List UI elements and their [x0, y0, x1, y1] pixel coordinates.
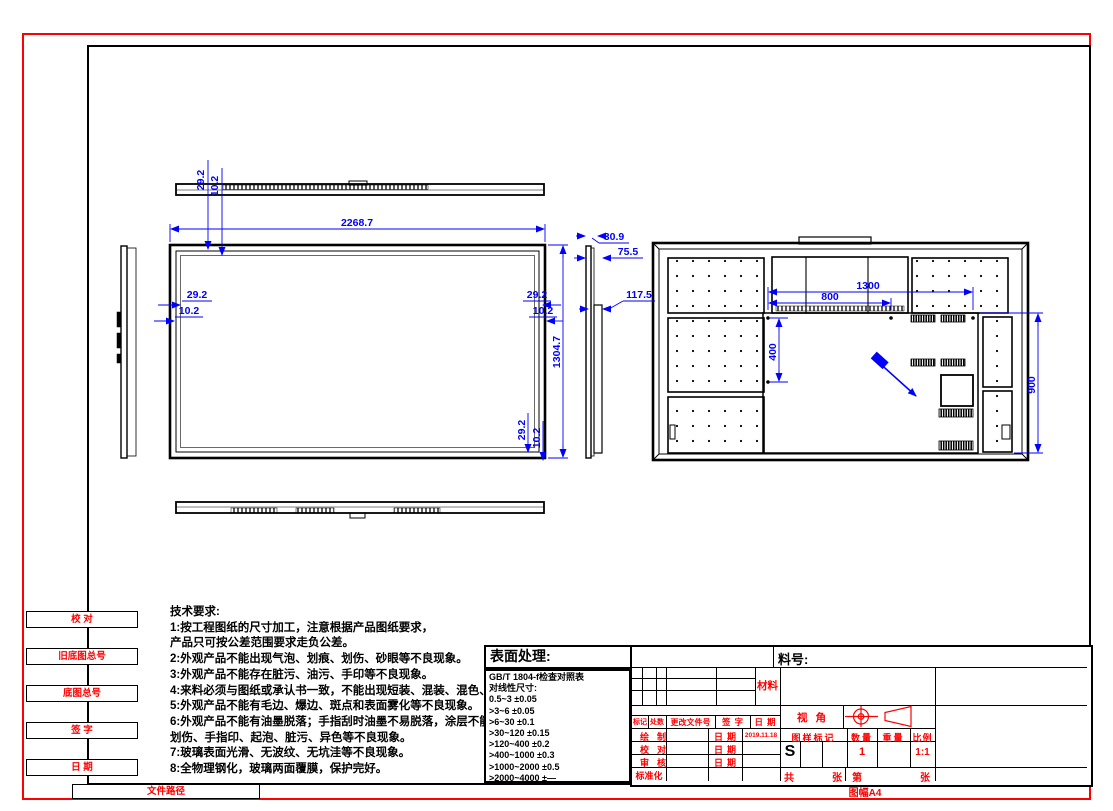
- margin-box-check: 校 对: [26, 611, 138, 628]
- tb-line: [632, 728, 935, 729]
- tb-line: [632, 690, 755, 691]
- margin-box-old-base-no: 旧底图总号: [26, 648, 138, 665]
- tb-line: [642, 667, 643, 705]
- tolerance-line: >400~1000 ±0.3: [489, 750, 629, 761]
- tolerance-line: 0.5~3 ±0.05: [489, 694, 629, 705]
- rev-col-count: 处数: [648, 717, 666, 727]
- bottom-edge-view: [176, 502, 544, 518]
- dim-rear-400-text: 400: [767, 343, 779, 361]
- qty-value: 1: [847, 746, 877, 758]
- rev-col-sign: 签字: [715, 716, 750, 728]
- margin-box-file-path: 文件路径: [72, 784, 260, 799]
- sheets-unit2-label: 张: [920, 769, 930, 784]
- tolerance-line: GB/T 1804-f检查对照表: [489, 672, 629, 683]
- dim-text: 29.2: [195, 170, 207, 191]
- dim-rear-1300-text: 1300: [856, 280, 880, 292]
- dim-bezel-left: 29.2 10.2: [154, 289, 212, 321]
- sign-row-audit-date-label: 日期: [708, 756, 742, 769]
- mark-col-scale: 比例: [910, 731, 935, 744]
- margin-label: 日 期: [71, 762, 93, 773]
- dim-side-a-text: 30.9: [604, 231, 625, 243]
- tb-line: [666, 667, 667, 705]
- material-label: 材料: [755, 678, 780, 693]
- tolerance-line: >2000~4000 ±—: [489, 773, 629, 784]
- margin-label: 文件路径: [147, 786, 185, 797]
- tb-line: [716, 667, 717, 705]
- cad-views: 2268.7 1304.7 29.2 10.2 29.2 10.2 29.2 1…: [0, 0, 1113, 600]
- rev-col-docno: 更改文件号: [666, 717, 715, 728]
- side-view-left: [117, 246, 136, 458]
- front-view: [170, 245, 545, 458]
- tb-line: [773, 647, 774, 667]
- tolerance-line: >1000~2000 ±0.5: [489, 762, 629, 773]
- dim-text: 10.2: [531, 428, 543, 449]
- tb-line: [632, 667, 1087, 668]
- dim-text: 29.2: [527, 289, 548, 301]
- dim-text: 10.2: [209, 176, 221, 197]
- sign-row-draw-date-value: 2019.11.18: [742, 732, 780, 739]
- sign-row-check-date-label: 日期: [708, 743, 742, 756]
- rev-col-mark: 标记: [632, 717, 648, 727]
- margin-label: 底图总号: [63, 688, 101, 699]
- margin-box-date: 日 期: [26, 759, 138, 776]
- tolerance-table: GB/T 1804-f检查对照表 对线性尺寸: 0.5~3 ±0.05 >3~6…: [484, 669, 631, 783]
- tb-line: [822, 741, 823, 767]
- mark-col-qty: 数量: [847, 731, 877, 744]
- dim-front-width-text: 2268.7: [341, 217, 373, 229]
- surface-treatment-title: 表面处理:: [490, 648, 551, 664]
- tolerance-line: >30~120 ±0.15: [489, 728, 629, 739]
- dim-side-b-text: 75.5: [618, 246, 639, 258]
- dim-rear-800-text: 800: [821, 291, 839, 303]
- sheets-total-label: 共: [784, 769, 794, 784]
- rev-col-date: 日期: [750, 716, 780, 728]
- tb-line: [845, 767, 846, 781]
- tech-title: 技术要求:: [170, 605, 590, 621]
- rear-view: [653, 237, 1028, 460]
- dim-front-height-text: 1304.7: [551, 336, 563, 368]
- top-edge-view: [176, 181, 544, 195]
- margin-label: 旧底图总号: [58, 651, 106, 662]
- sign-row-standard-label: 标准化: [632, 769, 666, 782]
- dim-side-c-text: 117.5: [626, 289, 652, 301]
- margin-label: 校 对: [71, 614, 93, 625]
- dim-bezel-top-left: 29.2 10.2: [195, 160, 222, 255]
- sheets-unit1-label: 张: [832, 769, 842, 784]
- dim-rear-900-text: 900: [1026, 376, 1038, 394]
- drawing-sheet: { "margin": { "labels": ["校 对", "旧底图总号",…: [0, 0, 1113, 811]
- projection-symbol-icon: [843, 705, 935, 728]
- tb-line: [800, 741, 801, 767]
- tolerance-line: >120~400 ±0.2: [489, 739, 629, 750]
- dim-text: 29.2: [516, 420, 528, 441]
- sign-row-draw-date-label: 日期: [708, 730, 742, 743]
- dim-bezel-right: 29.2 10.2: [523, 289, 563, 321]
- tolerance-line: >3~6 ±0.05: [489, 706, 629, 717]
- tb-line: [935, 667, 936, 781]
- sign-row-draw-label: 绘制: [632, 730, 666, 743]
- sign-row-check-label: 校对: [632, 743, 666, 756]
- tb-line: [656, 667, 657, 705]
- part-no-label: 料号:: [778, 649, 808, 668]
- view-angle-label: 视角: [780, 710, 843, 725]
- title-block: 料号: 材料 视角 标记 处数 更改文件号 签字 日期 绘制 日期 2019.1…: [630, 645, 1093, 787]
- mark-col-weight: 重量: [877, 731, 910, 744]
- dim-front-height: 1304.7: [548, 245, 568, 458]
- rear-callout-arrow: [871, 352, 916, 396]
- dim-front-width: 2268.7: [170, 217, 545, 242]
- tb-line: [632, 767, 1087, 768]
- dim-text: 10.2: [179, 305, 200, 317]
- side-view-right: [586, 246, 602, 458]
- dim-text: 10.2: [533, 305, 554, 317]
- tolerance-line: 对线性尺寸:: [489, 683, 629, 694]
- stage-mark-value: S: [780, 743, 800, 761]
- tb-line: [632, 678, 755, 679]
- dim-text: 29.2: [187, 289, 208, 301]
- sign-row-audit-label: 审核: [632, 756, 666, 769]
- margin-box-signature: 签 字: [26, 722, 138, 739]
- margin-label: 签 字: [71, 725, 93, 736]
- sheets-page-label: 第: [852, 769, 862, 784]
- tech-line: 1:按工程图纸的尺寸加工，注意根据产品图纸要求，: [170, 621, 590, 637]
- margin-box-base-no: 底图总号: [26, 685, 138, 702]
- sheet-size-label: 图幅A4: [820, 784, 910, 799]
- scale-value: 1:1: [910, 747, 935, 758]
- surface-treatment-header: 表面处理:: [484, 645, 638, 669]
- tolerance-line: >6~30 ±0.1: [489, 717, 629, 728]
